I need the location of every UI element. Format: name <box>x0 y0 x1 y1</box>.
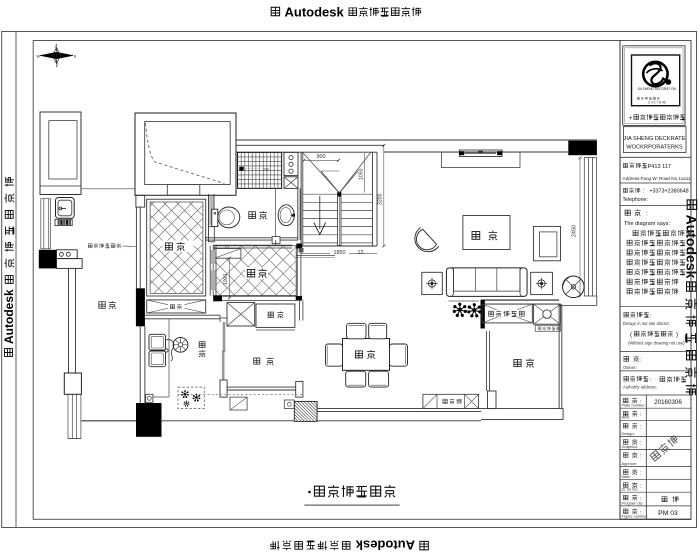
svg-text:60S: 60S <box>263 168 270 172</box>
svg-text:1000: 1000 <box>223 274 229 285</box>
svg-text:Owner:: Owner: <box>623 365 637 370</box>
svg-text:Approve:: Approve: <box>622 461 638 466</box>
svg-text:WOCKRPORATERKS: WOCKRPORATERKS <box>626 145 683 151</box>
svg-text:Autodesk: Autodesk <box>2 289 16 344</box>
svg-text:1050: 1050 <box>359 168 365 180</box>
svg-text:Design in our site disctor:: Design in our site disctor: <box>623 321 670 326</box>
svg-text:Date:: Date: <box>622 474 631 479</box>
svg-text:Autodesk: Autodesk <box>285 5 345 20</box>
svg-text:Graphics:: Graphics: <box>622 444 639 449</box>
svg-text:900: 900 <box>317 154 326 160</box>
svg-text:12: 12 <box>358 250 364 256</box>
svg-text:PM 03: PM 03 <box>658 510 678 517</box>
svg-text:2450: 2450 <box>572 225 578 237</box>
svg-text:： +3373+2380648: ： +3373+2380648 <box>643 189 689 195</box>
svg-text:(Without sign drawing not use): (Without sign drawing not use) <box>628 341 685 346</box>
svg-text:Plate number:: Plate number: <box>622 403 646 408</box>
svg-text:The diagram says:: The diagram says: <box>624 221 670 227</box>
svg-text:Telephone:: Telephone: <box>623 197 648 203</box>
svg-text:JIA SHENG DECKRATE: JIA SHENG DECKRATE <box>624 136 686 142</box>
svg-text:Autodesk: Autodesk <box>355 538 415 553</box>
svg-text:Figure number:: Figure number: <box>622 514 648 519</box>
svg-text:Address:Fang W. Road No.11a11: Address:Fang W. Road No.11a11 <box>623 176 691 181</box>
svg-text:Program da:: Program da: <box>622 500 643 505</box>
svg-text:Autodesk: Autodesk <box>684 215 700 279</box>
svg-text:Item:: Item: <box>622 415 631 420</box>
svg-text:2 4 2 7 8 4b: 2 4 2 7 8 4b <box>648 101 666 105</box>
svg-text:Authority address:: Authority address: <box>623 385 657 390</box>
svg-text:JIA SHENG DECORAT ON: JIA SHENG DECORAT ON <box>637 87 676 91</box>
svg-text:P413 117: P413 117 <box>648 164 672 170</box>
svg-text:3200: 3200 <box>378 193 384 205</box>
svg-text:Dr for No:: Dr for No: <box>622 487 639 492</box>
svg-text:20160306: 20160306 <box>654 399 682 406</box>
svg-text:Design:: Design: <box>622 431 635 436</box>
svg-text:): ) <box>676 333 678 339</box>
svg-text:+: + <box>629 115 633 122</box>
svg-text:1850: 1850 <box>334 250 346 256</box>
svg-text:(: ( <box>630 333 632 339</box>
